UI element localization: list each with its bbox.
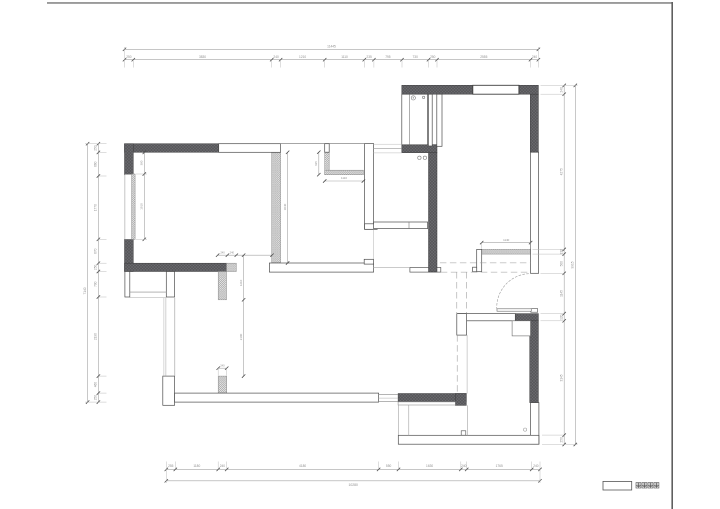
svg-text:240: 240	[230, 250, 235, 254]
svg-text:120: 120	[559, 314, 563, 320]
svg-text:660: 660	[94, 161, 98, 167]
svg-text:730: 730	[413, 55, 419, 59]
svg-text:795: 795	[385, 55, 391, 59]
svg-text:2100: 2100	[239, 333, 243, 340]
svg-text:1765: 1765	[496, 464, 503, 468]
svg-text:235: 235	[366, 55, 372, 59]
svg-text:250: 250	[559, 437, 563, 443]
svg-text:4180: 4180	[299, 464, 306, 468]
svg-text:240: 240	[220, 363, 225, 367]
svg-text:1145: 1145	[559, 290, 563, 297]
svg-text:250: 250	[430, 55, 436, 59]
svg-text:1140: 1140	[503, 238, 510, 242]
svg-text:500: 500	[559, 261, 563, 267]
svg-text:240: 240	[273, 55, 279, 59]
svg-text:3830: 3830	[199, 55, 206, 59]
svg-text:240: 240	[461, 464, 467, 468]
svg-text:250: 250	[94, 265, 98, 271]
svg-text:255: 255	[168, 464, 174, 468]
svg-text:1630: 1630	[426, 464, 433, 468]
svg-text:240: 240	[220, 250, 225, 254]
svg-text:240: 240	[533, 464, 539, 468]
svg-text:130: 130	[559, 249, 563, 255]
svg-text:1910: 1910	[140, 203, 144, 210]
svg-text:250: 250	[94, 395, 98, 401]
svg-text:250: 250	[94, 145, 98, 151]
svg-text:3040: 3040	[283, 203, 287, 210]
svg-text:380: 380	[140, 160, 144, 165]
svg-text:240: 240	[559, 87, 563, 93]
svg-text:9915: 9915	[570, 261, 574, 268]
svg-text:11445: 11445	[327, 44, 336, 48]
svg-text:4275: 4275	[559, 168, 563, 175]
svg-text:1210: 1210	[299, 55, 306, 59]
svg-text:2190: 2190	[94, 333, 98, 340]
svg-text:240: 240	[220, 464, 226, 468]
svg-text:250: 250	[126, 55, 132, 59]
svg-text:1110: 1110	[341, 176, 347, 180]
svg-text:700: 700	[94, 281, 98, 287]
svg-text:550: 550	[386, 464, 392, 468]
svg-text:460: 460	[94, 382, 98, 388]
svg-text:625: 625	[314, 161, 318, 166]
svg-text:1770: 1770	[94, 204, 98, 211]
svg-text:7140: 7140	[83, 287, 87, 294]
svg-text:1110: 1110	[341, 55, 348, 59]
svg-text:3145: 3145	[559, 374, 563, 381]
svg-text:670: 670	[94, 248, 98, 254]
svg-text:1180: 1180	[193, 464, 200, 468]
svg-text:1210: 1210	[239, 279, 243, 286]
svg-text:240: 240	[532, 55, 538, 59]
svg-text:2555: 2555	[480, 55, 487, 59]
svg-text:10280: 10280	[348, 483, 358, 487]
